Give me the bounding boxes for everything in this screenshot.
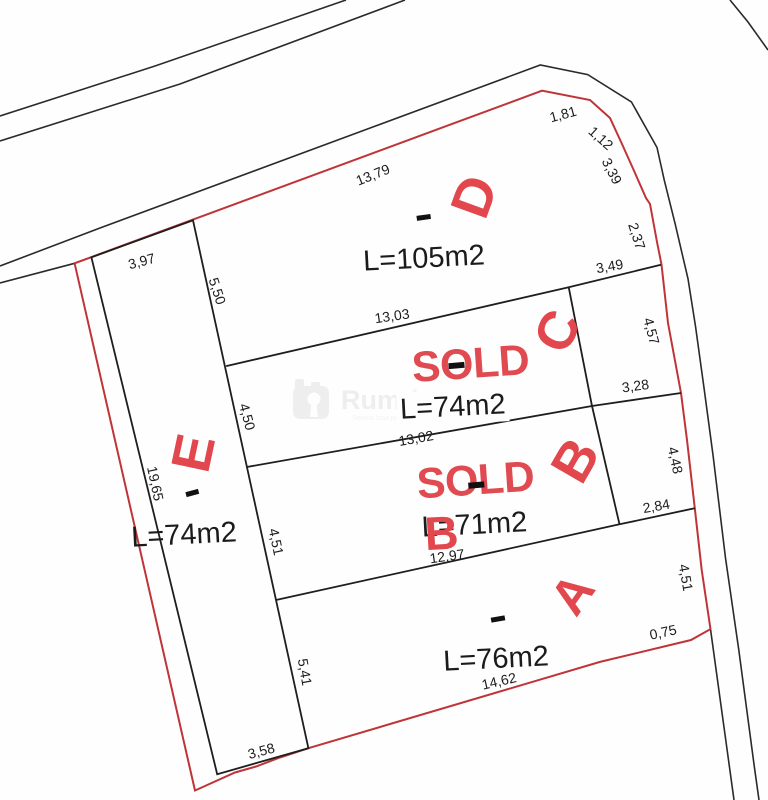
svg-text:3,97: 3,97 <box>126 250 157 273</box>
svg-text:3,28: 3,28 <box>621 376 650 396</box>
svg-text:0,75: 0,75 <box>648 621 678 642</box>
svg-text:3,49: 3,49 <box>595 256 625 277</box>
svg-text:L=76m2: L=76m2 <box>442 640 549 677</box>
svg-text:4,48: 4,48 <box>665 445 686 475</box>
svg-text:SOLD: SOLD <box>410 336 531 392</box>
svg-text:L=74m2: L=74m2 <box>130 516 237 553</box>
svg-text:1,81: 1,81 <box>548 103 579 126</box>
svg-text:5,41: 5,41 <box>295 657 316 687</box>
svg-text:4,51: 4,51 <box>266 527 287 557</box>
svg-text:2,37: 2,37 <box>625 221 649 252</box>
svg-text:13,02: 13,02 <box>397 427 434 449</box>
svg-text:E: E <box>159 429 227 478</box>
svg-text:4,50: 4,50 <box>236 401 259 432</box>
svg-text:13,03: 13,03 <box>374 305 411 326</box>
svg-text:5,50: 5,50 <box>206 276 230 307</box>
svg-text:1,12: 1,12 <box>586 123 617 153</box>
svg-text:4,51: 4,51 <box>676 563 697 593</box>
svg-text:4,57: 4,57 <box>640 316 663 347</box>
svg-text:2,84: 2,84 <box>641 496 671 517</box>
svg-text:Rum: Rum <box>341 385 401 415</box>
svg-text:L=74m2: L=74m2 <box>399 388 506 425</box>
svg-text:A: A <box>539 563 606 625</box>
svg-text:19,65: 19,65 <box>144 465 167 503</box>
svg-text:B: B <box>538 427 612 492</box>
svg-text:13,79: 13,79 <box>354 161 393 189</box>
svg-text:SOLD: SOLD <box>415 452 536 508</box>
svg-text:3,39: 3,39 <box>599 155 626 187</box>
svg-text:L=105m2: L=105m2 <box>362 239 485 277</box>
svg-text:D: D <box>438 167 510 226</box>
